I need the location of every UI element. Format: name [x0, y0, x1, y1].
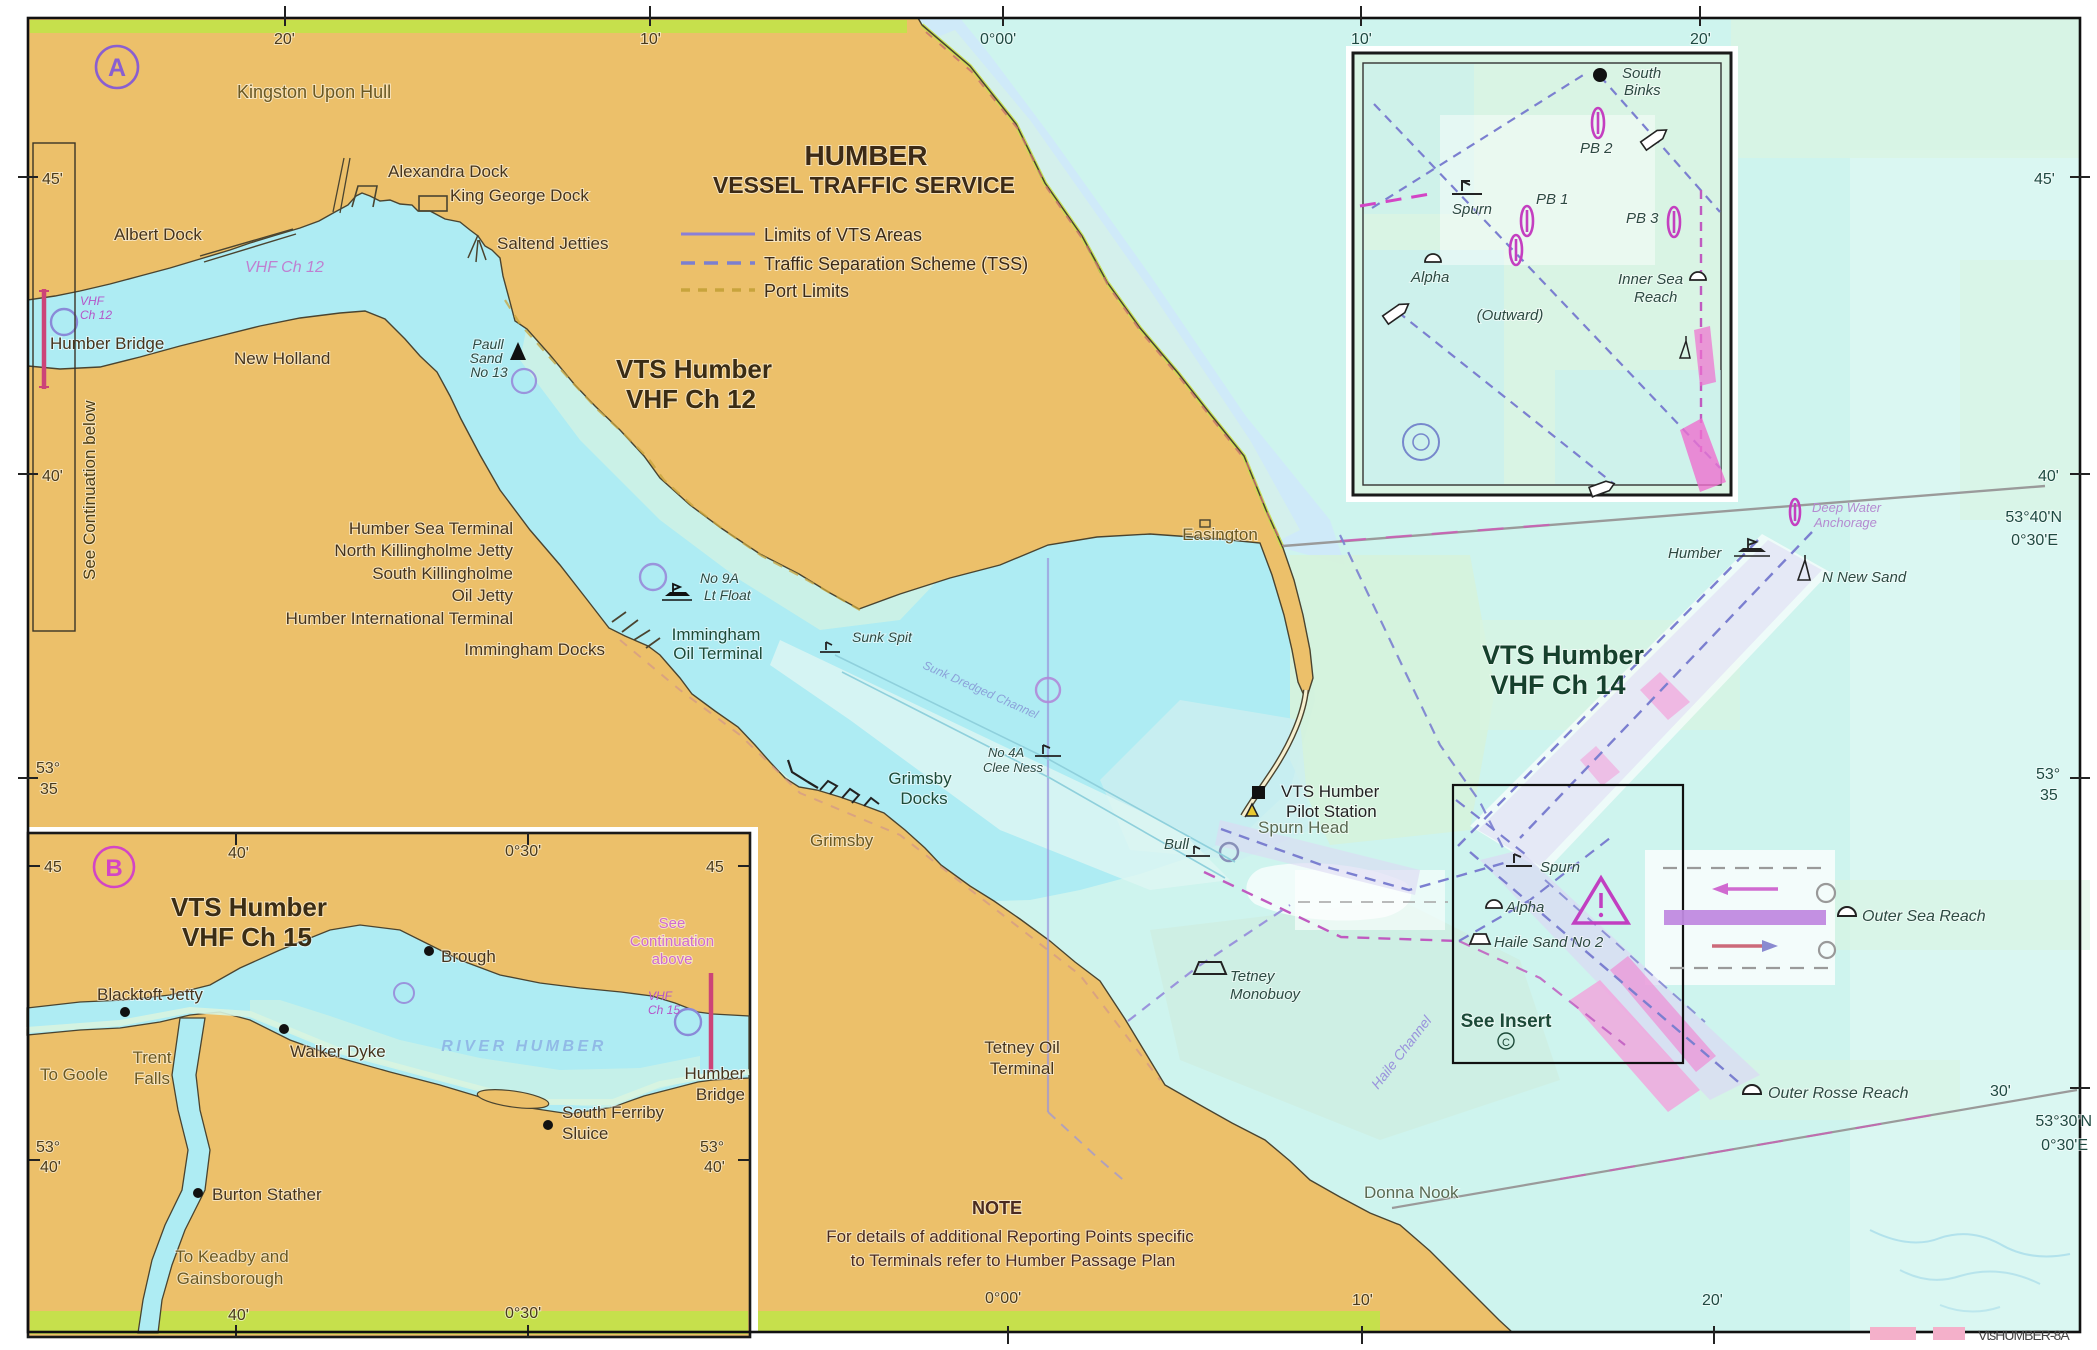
svg-text:Grimsby: Grimsby	[810, 831, 874, 850]
svg-text:30': 30'	[1990, 1083, 2011, 1100]
svg-text:VTS Humber: VTS Humber	[1482, 640, 1645, 670]
svg-text:40': 40'	[704, 1159, 725, 1176]
svg-text:N New Sand: N New Sand	[1822, 569, 1907, 586]
svg-text:0°30'E: 0°30'E	[2041, 1137, 2088, 1154]
svg-text:Saltend Jetties: Saltend Jetties	[497, 234, 609, 253]
svg-text:To Goole: To Goole	[40, 1065, 108, 1084]
svg-text:Immingham: Immingham	[672, 625, 761, 644]
svg-text:NOTE: NOTE	[972, 1198, 1022, 1218]
svg-text:Tetney: Tetney	[1230, 968, 1276, 985]
svg-text:VHF Ch 12: VHF Ch 12	[245, 259, 324, 276]
svg-text:VTS Humber: VTS Humber	[171, 892, 327, 922]
svg-text:Humber: Humber	[685, 1064, 746, 1083]
svg-text:VHF Ch 15: VHF Ch 15	[182, 922, 312, 952]
svg-text:Anchorage: Anchorage	[1813, 515, 1877, 530]
svg-text:Humber Sea Terminal: Humber Sea Terminal	[349, 519, 513, 538]
svg-text:See: See	[659, 915, 686, 932]
svg-text:40': 40'	[228, 845, 249, 862]
svg-text:45: 45	[706, 859, 724, 876]
svg-text:40': 40'	[2038, 468, 2059, 485]
svg-text:53°: 53°	[36, 760, 60, 777]
svg-text:Alpha: Alpha	[1410, 269, 1449, 286]
svg-text:Haile Sand No 2: Haile Sand No 2	[1494, 934, 1604, 951]
svg-text:Alexandra Dock: Alexandra Dock	[388, 162, 509, 181]
svg-text:Ch 15: Ch 15	[648, 1003, 680, 1017]
svg-text:Oil Jetty: Oil Jetty	[452, 586, 514, 605]
svg-text:Alpha: Alpha	[1505, 899, 1544, 916]
svg-text:53°: 53°	[2036, 766, 2060, 783]
svg-text:Trent: Trent	[132, 1048, 171, 1067]
svg-text:Falls: Falls	[134, 1069, 170, 1088]
svg-text:South Killingholme: South Killingholme	[372, 564, 513, 583]
svg-text:45': 45'	[42, 171, 63, 188]
svg-text:Burton Stather: Burton Stather	[212, 1185, 322, 1204]
svg-text:10': 10'	[640, 31, 661, 48]
svg-text:Outer Rosse Reach: Outer Rosse Reach	[1768, 1085, 1909, 1102]
svg-text:C: C	[1502, 1037, 1510, 1049]
svg-text:Humber Bridge: Humber Bridge	[50, 334, 164, 353]
svg-text:53°30'N: 53°30'N	[2035, 1113, 2092, 1130]
svg-text:Sunk Spit: Sunk Spit	[852, 629, 913, 645]
svg-text:20': 20'	[274, 31, 295, 48]
svg-text:Deep Water: Deep Water	[1812, 500, 1882, 515]
svg-text:53°40'N: 53°40'N	[2005, 509, 2062, 526]
svg-text:53°: 53°	[36, 1139, 60, 1156]
svg-text:PB 1: PB 1	[1536, 191, 1569, 208]
svg-text:Humber: Humber	[1668, 545, 1722, 562]
svg-text:35: 35	[2040, 787, 2058, 804]
svg-text:RIVER HUMBER: RIVER HUMBER	[441, 1038, 607, 1055]
svg-text:53°: 53°	[700, 1139, 724, 1156]
svg-text:Lt Float: Lt Float	[704, 587, 752, 603]
svg-text:Docks: Docks	[900, 789, 947, 808]
svg-text:Inner Sea: Inner Sea	[1618, 271, 1683, 288]
svg-text:No 4A: No 4A	[988, 745, 1024, 760]
svg-text:B: B	[105, 855, 122, 882]
svg-text:No 13: No 13	[470, 364, 508, 380]
svg-text:40': 40'	[228, 1307, 249, 1324]
svg-text:(Outward): (Outward)	[1477, 307, 1544, 324]
svg-text:See Continuation below: See Continuation below	[80, 400, 99, 580]
svg-text:Monobuoy: Monobuoy	[1230, 986, 1302, 1003]
svg-text:Continuation: Continuation	[630, 933, 714, 950]
svg-text:Reach: Reach	[1634, 289, 1677, 306]
svg-text:Sluice: Sluice	[562, 1124, 608, 1143]
svg-text:45': 45'	[2034, 171, 2055, 188]
svg-text:No 9A: No 9A	[700, 570, 739, 586]
svg-text:20': 20'	[1702, 1292, 1723, 1309]
svg-text:VTS Humber: VTS Humber	[1281, 782, 1380, 801]
svg-text:VtsHUMBER-8A: VtsHUMBER-8A	[1978, 1327, 2070, 1343]
svg-text:Spurn Head: Spurn Head	[1258, 818, 1349, 837]
svg-text:For details of additional Repo: For details of additional Reporting Poin…	[826, 1227, 1194, 1246]
svg-text:VTS Humber: VTS Humber	[616, 354, 772, 384]
svg-text:0°30': 0°30'	[505, 1305, 541, 1322]
svg-text:Grimsby: Grimsby	[888, 769, 952, 788]
svg-text:VHF: VHF	[80, 294, 105, 308]
svg-text:Gainsborough: Gainsborough	[177, 1269, 284, 1288]
svg-text:0°30'E: 0°30'E	[2011, 532, 2058, 549]
svg-text:A: A	[108, 54, 126, 82]
svg-text:Donna Nook: Donna Nook	[1364, 1183, 1459, 1202]
svg-text:Oil Terminal: Oil Terminal	[673, 644, 762, 663]
svg-text:New Holland: New Holland	[234, 349, 330, 368]
svg-text:South: South	[1622, 65, 1661, 82]
svg-text:40': 40'	[42, 468, 63, 485]
svg-text:Clee Ness: Clee Ness	[983, 760, 1043, 775]
svg-text:PB 2: PB 2	[1580, 140, 1613, 157]
svg-text:VESSEL TRAFFIC SERVICE: VESSEL TRAFFIC SERVICE	[713, 172, 1015, 198]
svg-text:Ch 12: Ch 12	[80, 308, 112, 322]
svg-text:Spurn: Spurn	[1540, 859, 1580, 876]
svg-text:0°00': 0°00'	[985, 1290, 1021, 1307]
svg-text:Blacktoft Jetty: Blacktoft Jetty	[97, 985, 203, 1004]
svg-text:Tetney Oil: Tetney Oil	[984, 1038, 1060, 1057]
svg-text:Bull: Bull	[1164, 836, 1190, 853]
svg-text:See Insert: See Insert	[1461, 1011, 1552, 1032]
svg-text:To Keadby and: To Keadby and	[175, 1247, 288, 1266]
svg-text:Limits of VTS Areas: Limits of VTS Areas	[764, 225, 922, 245]
svg-text:Kingston Upon Hull: Kingston Upon Hull	[237, 82, 391, 102]
svg-text:to Terminals refer to Humber P: to Terminals refer to Humber Passage Pla…	[851, 1251, 1176, 1270]
svg-text:Easington: Easington	[1182, 525, 1258, 544]
svg-text:South Ferriby: South Ferriby	[562, 1103, 665, 1122]
svg-text:Brough: Brough	[441, 947, 496, 966]
svg-text:King George Dock: King George Dock	[450, 186, 589, 205]
svg-text:VHF Ch 14: VHF Ch 14	[1490, 670, 1625, 700]
svg-text:10': 10'	[1352, 1292, 1373, 1309]
svg-text:Bridge: Bridge	[696, 1085, 745, 1104]
svg-text:40': 40'	[40, 1159, 61, 1176]
svg-text:Walker Dyke: Walker Dyke	[290, 1042, 386, 1061]
svg-text:VHF: VHF	[648, 989, 673, 1003]
svg-text:45: 45	[44, 859, 62, 876]
svg-text:Port Limits: Port Limits	[764, 281, 849, 301]
svg-text:20': 20'	[1690, 31, 1711, 48]
svg-text:Traffic Separation Scheme (TSS: Traffic Separation Scheme (TSS)	[764, 254, 1028, 274]
svg-text:VHF Ch 12: VHF Ch 12	[626, 384, 756, 414]
svg-text:Spurn: Spurn	[1452, 201, 1492, 218]
svg-text:North Killingholme Jetty: North Killingholme Jetty	[334, 541, 513, 560]
svg-text:10': 10'	[1351, 31, 1372, 48]
svg-text:Binks: Binks	[1624, 82, 1661, 99]
svg-text:PB 3: PB 3	[1626, 210, 1659, 227]
svg-text:Terminal: Terminal	[990, 1059, 1054, 1078]
svg-text:0°00': 0°00'	[980, 31, 1016, 48]
svg-text:above: above	[652, 951, 693, 968]
svg-text:HUMBER: HUMBER	[805, 140, 928, 171]
svg-text:35: 35	[40, 781, 58, 798]
svg-text:Albert Dock: Albert Dock	[114, 225, 202, 244]
svg-text:0°30': 0°30'	[505, 843, 541, 860]
svg-text:Outer Sea Reach: Outer Sea Reach	[1862, 908, 1986, 925]
svg-text:Immingham Docks: Immingham Docks	[464, 640, 605, 659]
svg-text:Humber International Terminal: Humber International Terminal	[286, 609, 513, 628]
